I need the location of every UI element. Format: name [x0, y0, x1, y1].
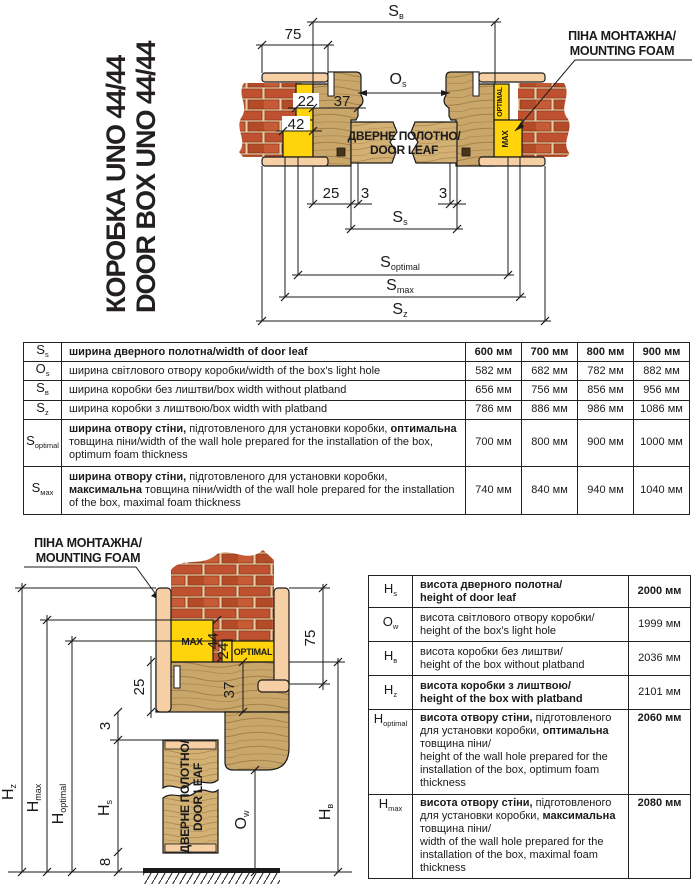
door-leaf-label-en: DOOR LEAF: [370, 143, 438, 157]
dim-37-label: 37: [334, 93, 351, 110]
dim-hs-label: Hs: [96, 799, 114, 816]
bottom-diagram: ПІНА МОНТАЖНА/ MOUNTING FOAM MAX OPTIMAL…: [0, 520, 365, 895]
door-leaf-label-en: DOOR LEAF: [191, 763, 205, 831]
dim-soptimal-label: Soptimal: [380, 254, 420, 272]
door-leaf: ДВЕРНЕ ПОЛОТНО/ DOOR LEAF: [348, 122, 462, 163]
foam-max-label: MAX: [501, 130, 510, 148]
table-row: Hв висота коробки без лиштви/height of t…: [369, 642, 691, 676]
dim-hoptimal-label: Hoptimal: [50, 784, 68, 825]
brick-wall-right: [518, 83, 570, 157]
door-leaf-label-uk: ДВЕРНЕ ПОЛОТНО/: [348, 129, 462, 143]
door-leaf-label-uk: ДВЕРНЕ ПОЛОТНО/: [178, 740, 192, 854]
door-leaf: ДВЕРНЕ ПОЛОТНО/ DOOR LEAF: [163, 740, 218, 854]
dim-ss: Ss: [345, 209, 463, 233]
dim-hmax-label: Hmax: [25, 783, 43, 812]
dim-os-label: Os: [390, 71, 407, 89]
foam-optimal-label: OPTIMAL: [497, 86, 504, 116]
dim-ow: Ow: [233, 766, 259, 868]
dim-sz: Sz: [256, 301, 551, 325]
floor: [143, 868, 280, 884]
foam-note-en: MOUNTING FOAM: [36, 551, 140, 565]
dim-sz-label: Sz: [392, 301, 408, 319]
dim-ss-label: Ss: [392, 209, 408, 227]
dim-42-label: 42: [288, 116, 305, 133]
table-row: Sв ширина коробки без лиштви/box width w…: [24, 381, 690, 400]
page: КОРОБКА UNO 44/44 DOOR BOX UNO 44/44: [0, 0, 692, 895]
top-diagram: OPTIMAL MAX ДВЕРНЕ ПОЛОТНО/: [230, 0, 692, 335]
dim-24-label: 24: [215, 643, 232, 660]
height-table: Hs висота дверного полотна/height of doo…: [368, 575, 691, 879]
dim-3-right: 3: [438, 185, 466, 208]
table-row: Ss ширина дверного полотна/width of door…: [24, 343, 690, 362]
table-row: Hmax висота отвору стіни, підготовленого…: [369, 795, 691, 879]
dim-25-label: 25: [131, 679, 148, 696]
dim-hb: Hв: [317, 658, 342, 872]
dim-75: 75: [302, 584, 327, 690]
mounting-foam-note-bottom: ПІНА МОНТАЖНА/ MOUNTING FOAM: [24, 536, 160, 600]
dim-soptimal: Soptimal: [292, 254, 514, 279]
dim-25: 25: [131, 656, 155, 718]
foam-note-en: MOUNTING FOAM: [570, 44, 674, 58]
dim-25: 25 3: [307, 185, 372, 208]
dim-hb-label: Hв: [317, 804, 335, 821]
foam-max-label: MAX: [181, 637, 203, 648]
foam-note-uk: ПІНА МОНТАЖНА/: [568, 29, 676, 43]
dim-hz-label: Hz: [0, 783, 18, 800]
dim-3-label: 3: [97, 722, 114, 730]
dim-smax-label: Smax: [386, 277, 414, 295]
dim-75-label: 75: [302, 630, 319, 647]
page-title-uk: КОРОБКА UNO 44/44: [101, 21, 131, 313]
dim-75: 75: [256, 26, 334, 49]
dim-ow-label: Ow: [233, 810, 251, 829]
table-row: Hoptimal висота отвору стіни, підготовле…: [369, 710, 691, 795]
dim-hs: 3 Hs 8: [96, 708, 122, 872]
dim-hz: Hz: [0, 583, 26, 872]
dim-8-label: 8: [97, 858, 114, 866]
foam-optimal-label: OPTIMAL: [234, 647, 273, 657]
foam-note-uk: ПІНА МОНТАЖНА/: [34, 536, 142, 550]
page-title-en: DOOR BOX UNO 44/44: [131, 21, 161, 313]
dim-3-right-label: 3: [439, 185, 447, 202]
dim-hmax: Hmax: [25, 615, 51, 872]
extension-lines: [262, 22, 545, 321]
dim-75-label: 75: [285, 26, 302, 43]
page-title: КОРОБКА UNO 44/44 DOOR BOX UNO 44/44: [101, 21, 161, 313]
dim-37-label: 37: [221, 682, 238, 699]
table-row: Ow висота світлового отвору коробки/heig…: [369, 608, 691, 642]
table-row: Hz висота коробки з лиштвою/height of th…: [369, 676, 691, 710]
table-row: Os ширина світлового отвору коробки/widt…: [24, 362, 690, 381]
width-table: Ss ширина дверного полотна/width of door…: [23, 342, 690, 515]
dim-25-label: 25: [323, 185, 340, 202]
dim-sb: Sв: [307, 3, 501, 26]
dim-os: Os: [358, 71, 450, 96]
dim-sb-label: Sв: [388, 3, 404, 21]
mounting-foam-right: OPTIMAL MAX: [494, 84, 522, 157]
platband-left: [156, 588, 171, 712]
dim-3-left-label: 3: [361, 185, 369, 202]
table-row: Soptimal ширина отвору стіни, підготовле…: [24, 419, 690, 466]
table-row: Sz ширина коробки з лиштвою/box width wi…: [24, 400, 690, 419]
dim-22-label: 22: [298, 93, 315, 110]
table-row: Hs висота дверного полотна/height of doo…: [369, 576, 691, 608]
dim-hoptimal: Hoptimal: [50, 636, 76, 872]
table-row: Sмах ширина отвору стіни, підготовленого…: [24, 466, 690, 514]
dim-smax: Smax: [279, 277, 526, 301]
